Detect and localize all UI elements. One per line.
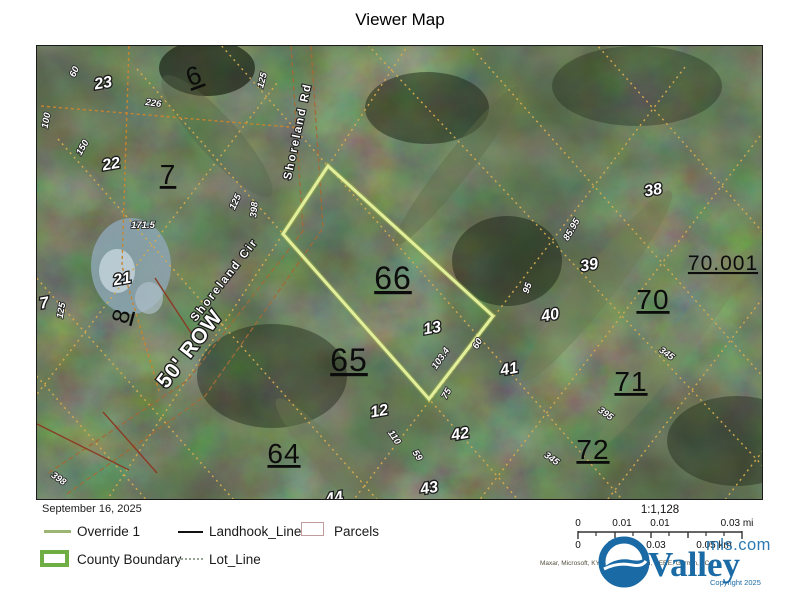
map-label-19-41: 41 bbox=[498, 360, 520, 380]
map-label-8-71: 71 bbox=[614, 366, 647, 397]
map-label-12-21: 21 bbox=[111, 270, 133, 290]
legend-label-lot-line: Lot_Line bbox=[209, 552, 261, 567]
map-label-11-22: 22 bbox=[100, 155, 122, 175]
map-label-4-65: 65 bbox=[330, 342, 368, 378]
map-label-16-38: 38 bbox=[643, 181, 664, 201]
logo-copyright: Copyright 2025 bbox=[710, 578, 761, 587]
viewer-map-page: Viewer Map bbox=[0, 0, 800, 600]
county-boundary-swatch bbox=[40, 550, 69, 567]
map-label-28-171-5: 171.5 bbox=[131, 220, 155, 231]
map-label-1-7: 7 bbox=[160, 159, 177, 190]
map-viewport[interactable]: 67866656470.0017071722322217131238394041… bbox=[36, 45, 763, 500]
map-date: September 16, 2025 bbox=[42, 503, 142, 515]
map-label-9-72: 72 bbox=[576, 434, 609, 465]
map-label-21-43: 43 bbox=[418, 479, 440, 499]
map-label-6-70-001: 70.001 bbox=[688, 252, 758, 275]
map-label-3-66: 66 bbox=[374, 260, 412, 296]
override-line-swatch bbox=[44, 530, 71, 533]
legend-label-landhook-line: Landhook_Line bbox=[209, 524, 301, 539]
valleymls-circle-icon bbox=[596, 534, 652, 590]
map-label-17-39: 39 bbox=[579, 256, 600, 276]
parcels-swatch bbox=[301, 522, 324, 536]
map-label-14-13: 13 bbox=[422, 319, 443, 339]
lot-line-swatch bbox=[178, 558, 203, 560]
map-label-20-42: 42 bbox=[449, 425, 471, 445]
map-canvas[interactable]: 67866656470.0017071722322217131238394041… bbox=[37, 46, 762, 499]
legend-label-override: Override 1 bbox=[77, 524, 140, 539]
valleymls-logo: Valley mls.com Copyright 2025 bbox=[596, 533, 796, 597]
landhook-line-swatch bbox=[178, 531, 203, 533]
legend-label-county-boundary: County Boundary bbox=[77, 552, 181, 567]
valleymls-suffix: mls.com bbox=[706, 536, 771, 555]
legend-label-parcels: Parcels bbox=[334, 524, 379, 539]
map-label-10-23: 23 bbox=[92, 74, 114, 94]
scale-ratio: 1:1,128 bbox=[578, 504, 742, 516]
map-label-18-40: 40 bbox=[539, 306, 561, 326]
map-label-7-70: 70 bbox=[636, 284, 669, 315]
map-label-30-398: 398 bbox=[248, 201, 260, 218]
map-label-5-64: 64 bbox=[267, 438, 300, 469]
page-title: Viewer Map bbox=[0, 10, 800, 30]
map-label-15-12: 12 bbox=[369, 402, 390, 422]
